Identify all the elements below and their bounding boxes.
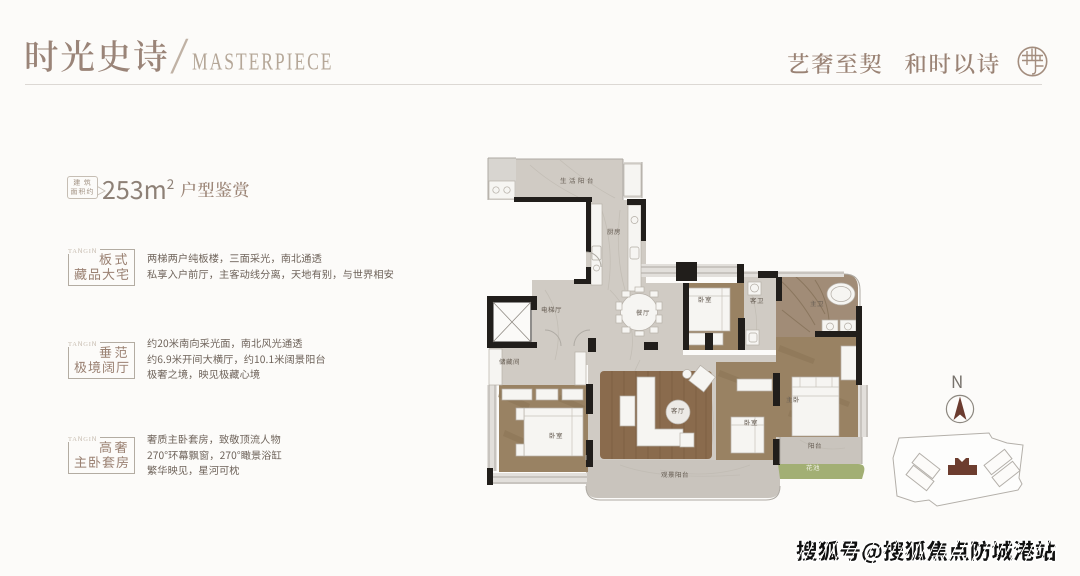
- svg-text:客厅: 客厅: [671, 405, 685, 415]
- svg-text:生 活 阳 台: 生 活 阳 台: [560, 175, 594, 185]
- svg-text:卧室: 卧室: [698, 294, 712, 304]
- svg-text:厨房: 厨房: [607, 226, 621, 236]
- svg-text:观景阳台: 观景阳台: [661, 469, 689, 479]
- svg-text:花池: 花池: [806, 462, 820, 472]
- svg-text:卧室: 卧室: [744, 417, 758, 427]
- svg-text:主卫: 主卫: [810, 298, 824, 308]
- svg-text:卧室: 卧室: [549, 430, 563, 440]
- svg-text:餐厅: 餐厅: [636, 307, 650, 317]
- svg-text:客卫: 客卫: [750, 295, 764, 305]
- svg-text:阳台: 阳台: [808, 440, 822, 450]
- svg-text:储藏间: 储藏间: [499, 356, 520, 366]
- svg-text:主卧: 主卧: [786, 394, 800, 404]
- svg-text:电梯厅: 电梯厅: [541, 304, 562, 314]
